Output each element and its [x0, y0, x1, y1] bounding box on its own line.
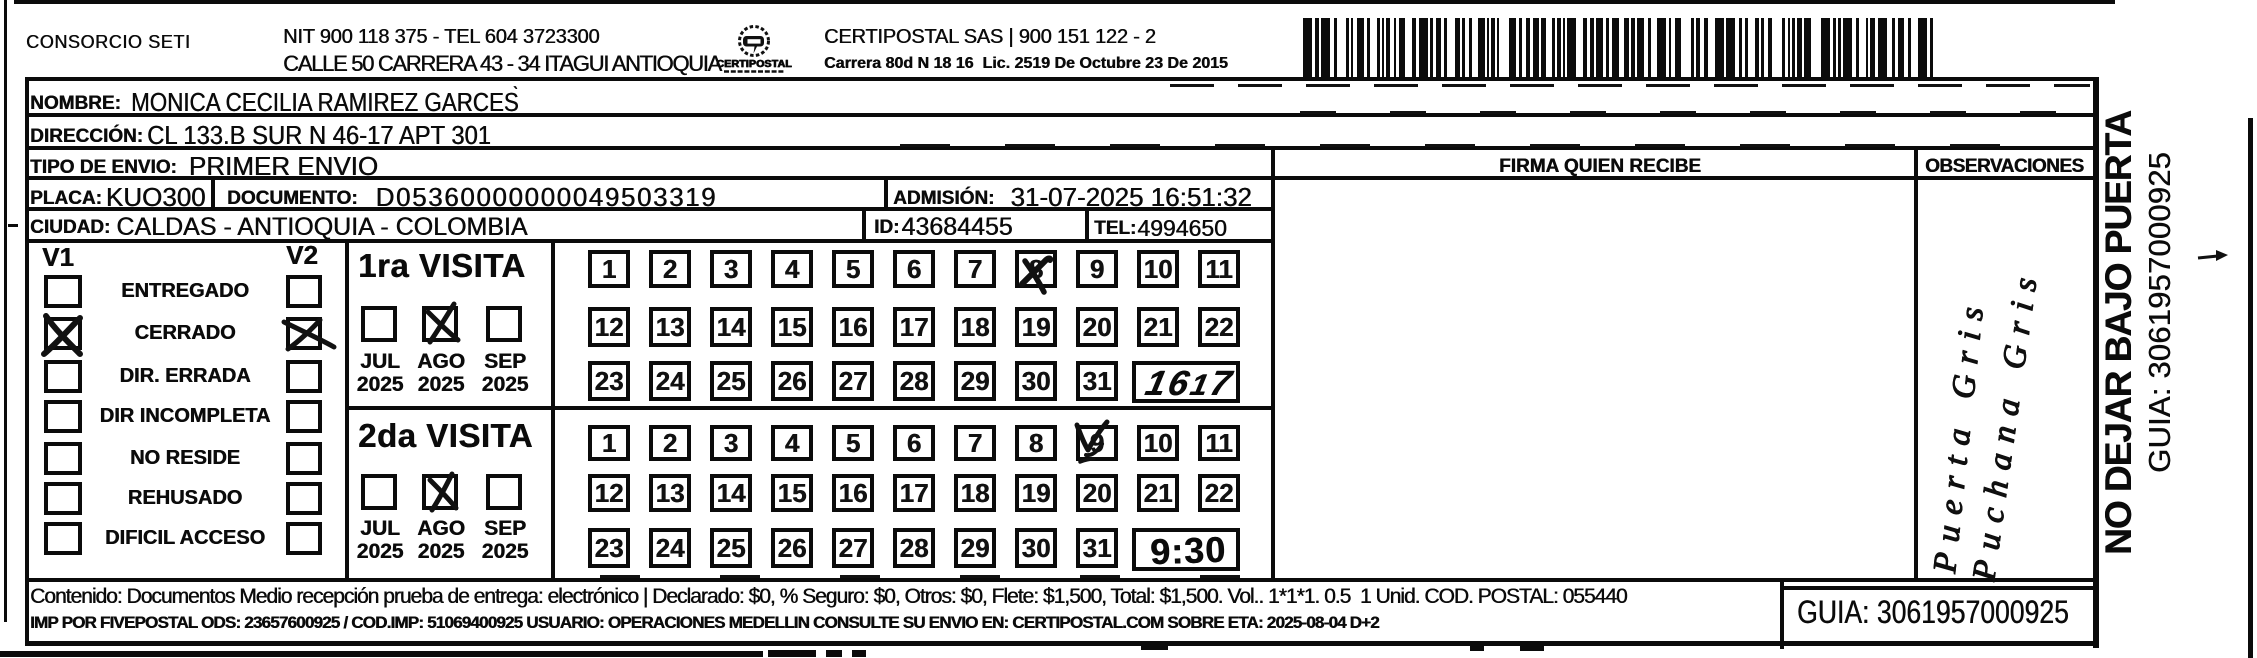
svg-text:CERTIPOSTAL: CERTIPOSTAL — [716, 58, 792, 70]
